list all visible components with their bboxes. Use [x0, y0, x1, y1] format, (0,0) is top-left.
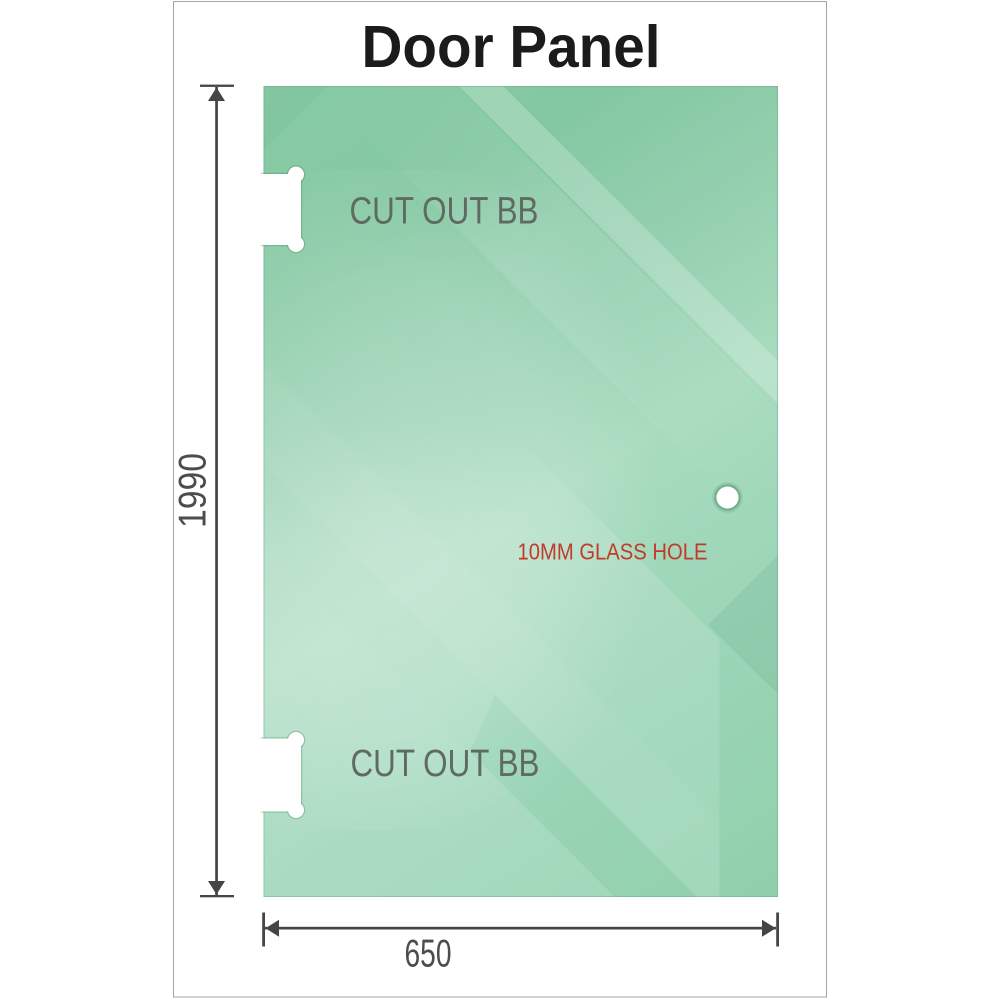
svg-text:CUT OUT BB: CUT OUT BB [351, 743, 540, 785]
svg-text:CUT OUT BB: CUT OUT BB [350, 191, 539, 233]
svg-text:Door Panel: Door Panel [362, 14, 661, 80]
svg-text:650: 650 [405, 933, 452, 976]
svg-text:10MM GLASS HOLE: 10MM GLASS HOLE [518, 539, 708, 565]
svg-text:1990: 1990 [172, 453, 215, 528]
